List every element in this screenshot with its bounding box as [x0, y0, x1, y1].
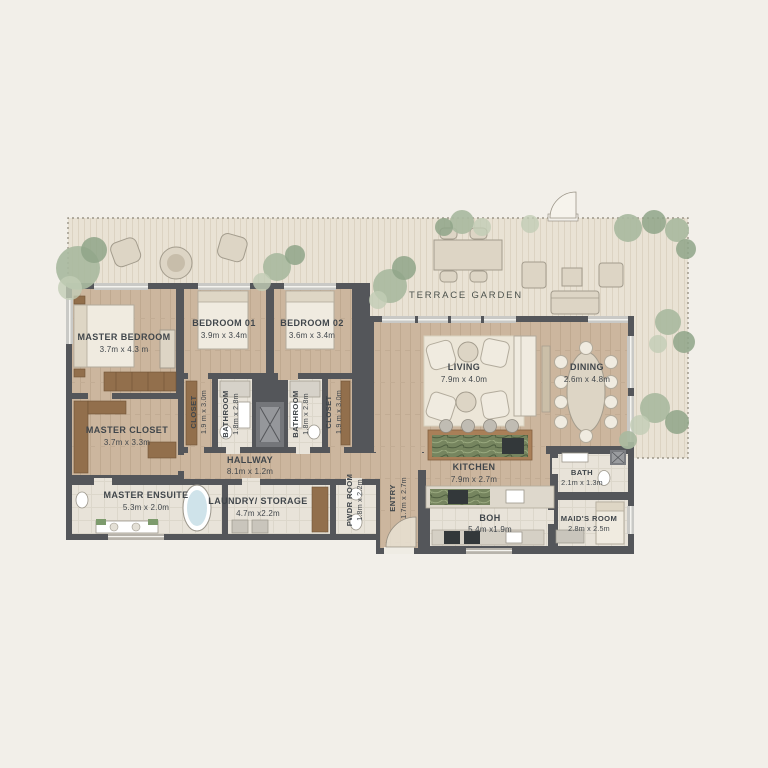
room-dims: 3.7m x 3.3m — [104, 438, 150, 447]
dining-chair — [555, 416, 568, 429]
room-label: BATHROOM — [221, 390, 230, 437]
plant — [435, 218, 453, 236]
room-label: MASTER BEDROOM — [77, 332, 170, 342]
plant — [285, 245, 305, 265]
appliance — [444, 531, 460, 544]
room-label: BATHROOM — [291, 390, 300, 437]
sink-unit — [448, 490, 468, 504]
dining-chair — [605, 396, 618, 409]
coffee-table — [456, 392, 476, 412]
window — [284, 283, 336, 290]
wardrobe — [88, 401, 126, 414]
plant — [521, 215, 539, 233]
label-maids-room: MAID'S ROOM 2.8m x 2.5m — [561, 514, 617, 533]
nightstand — [74, 369, 85, 377]
room-dims: 1.8m x 2.8m — [231, 393, 240, 435]
plant — [392, 256, 416, 280]
room-label: BEDROOM 02 — [280, 318, 344, 328]
room-dims: 1.8m x 2.2m — [355, 479, 364, 521]
coffee-table — [458, 342, 478, 362]
bed-pillows — [286, 291, 334, 302]
room-label: ENTRY — [388, 484, 397, 511]
room-dims: 5.3m x 2.0m — [123, 503, 169, 512]
room-dims: 1.9 m x 3.0m — [334, 390, 343, 434]
bar-stool — [462, 420, 475, 433]
room-label: LAUNDRY/ STORAGE — [208, 496, 307, 506]
outdoor-table — [434, 240, 502, 270]
window — [108, 534, 164, 540]
outdoor-side-table — [562, 268, 582, 286]
room-label: HALLWAY — [227, 455, 273, 465]
plant — [665, 410, 689, 434]
room-dims: 2.6m x 4.8m — [564, 375, 610, 384]
outdoor-chair — [440, 271, 457, 282]
service-shaft — [610, 450, 626, 465]
floor-plan-canvas: TERRACE GARDEN — [0, 0, 768, 768]
room-label: CLOSET — [189, 395, 198, 428]
plant — [96, 519, 106, 525]
plant — [655, 309, 681, 335]
room-label: MASTER CLOSET — [86, 425, 168, 435]
wardrobe — [104, 372, 176, 391]
outdoor-chair — [470, 271, 487, 282]
sliding-glass-door — [382, 316, 516, 323]
room-dims: 4.7m x2.2m — [236, 509, 280, 518]
bar-stool — [506, 420, 519, 433]
plant — [630, 415, 650, 435]
label-bathroom-1: BATHROOM 1.8m x 2.8m — [221, 390, 240, 437]
plant — [649, 335, 667, 353]
room-label: MASTER ENSUITE — [103, 490, 188, 500]
bed-pillows — [198, 291, 248, 302]
dining-chair — [605, 416, 618, 429]
elevator-shaft — [256, 402, 284, 447]
room-dims: 7.9m x 2.7m — [451, 475, 497, 484]
room-dims: 2.8m x 2.5m — [568, 524, 610, 533]
room-label: MAID'S ROOM — [561, 514, 617, 523]
plant — [450, 210, 474, 234]
label-closet-2: CLOSET 1.9 m x 3.0m — [324, 390, 343, 434]
closet-island — [148, 442, 176, 458]
room-label: BOH — [479, 513, 500, 523]
sofa — [514, 336, 536, 416]
room-dims: 7.9m x 4.0m — [441, 375, 487, 384]
washer — [232, 520, 248, 533]
dining-chair — [580, 342, 593, 355]
plant — [58, 276, 82, 300]
armchair — [480, 338, 511, 369]
room-label: DINING — [570, 362, 604, 372]
toilet — [76, 492, 88, 508]
plant — [673, 331, 695, 353]
floor-plan-page: TERRACE GARDEN — [0, 0, 768, 768]
plant — [148, 519, 158, 525]
window — [627, 336, 634, 388]
room-dims: 1.7m x 2.7m — [399, 477, 408, 519]
dining-chair — [580, 430, 593, 443]
plant — [253, 273, 271, 291]
window — [94, 283, 148, 290]
dryer — [252, 520, 268, 533]
plant — [81, 237, 107, 263]
terrace-label: TERRACE GARDEN — [409, 290, 523, 301]
window — [627, 506, 634, 534]
room-label: PWDR ROOM — [345, 474, 354, 527]
room-label: BATH — [571, 468, 593, 477]
outdoor-sofa — [551, 291, 599, 314]
window — [198, 283, 250, 290]
room-dims: 5.4m x1.9m — [468, 525, 512, 534]
bar-stool — [484, 420, 497, 433]
window — [588, 316, 628, 323]
room-dims: 3.6m x 3.4m — [289, 331, 335, 340]
room-label: CLOSET — [324, 395, 333, 428]
bed-pillow — [596, 502, 624, 511]
plant — [369, 291, 387, 309]
dining-chair — [555, 396, 568, 409]
outdoor-armchair — [599, 263, 623, 287]
bar-stool — [440, 420, 453, 433]
wardrobe — [74, 401, 88, 473]
media-console — [542, 346, 550, 412]
outdoor-armchair — [522, 262, 546, 288]
plant — [665, 218, 689, 242]
room-dims: 1.9 m x 3.0m — [199, 390, 208, 434]
armchair — [480, 390, 510, 420]
plant — [642, 210, 666, 234]
plant — [614, 214, 642, 242]
plant — [676, 239, 696, 259]
room-dims: 8.1m x 1.2m — [227, 467, 273, 476]
counter-sink — [506, 490, 524, 503]
plant — [619, 431, 637, 449]
cooktop — [502, 438, 524, 454]
dining-chair — [555, 356, 568, 369]
bathtub-water — [187, 490, 207, 526]
vanity — [562, 453, 588, 462]
room-dims: 2.1m x 1.3m — [561, 478, 603, 487]
room-dims: 3.7m x 4.3 m — [100, 345, 149, 354]
storage-cabinet — [312, 487, 328, 532]
plant — [473, 218, 491, 236]
window — [466, 548, 512, 554]
label-pwdr-room: PWDR ROOM 1.8m x 2.2m — [345, 474, 364, 527]
room-dims: 1.8m x 2.8m — [301, 393, 310, 435]
room-label: BEDROOM 01 — [192, 318, 256, 328]
label-closet-1: CLOSET 1.9 m x 3.0m — [189, 390, 208, 434]
dining-chair — [605, 356, 618, 369]
label-bathroom-2: BATHROOM 1.8m x 2.8m — [291, 390, 310, 437]
room-label: LIVING — [448, 362, 480, 372]
window — [66, 298, 73, 344]
room-dims: 3.9m x 3.4m — [201, 331, 247, 340]
room-label: KITCHEN — [453, 462, 496, 472]
